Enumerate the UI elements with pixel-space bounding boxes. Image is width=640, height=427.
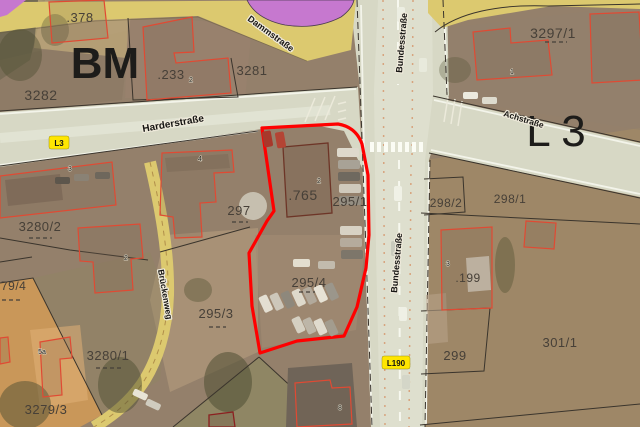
parcel-label-3281: 3281 <box>237 63 268 78</box>
parcel-label-3280-2: 3280/2 <box>19 219 62 234</box>
building-label-1: 1 <box>510 69 514 76</box>
parcel-label-295-3: 295/3 <box>198 306 233 321</box>
parcel-label-298-2: 298/2 <box>430 196 463 210</box>
badge-l190-text: L190 <box>387 359 406 368</box>
building-label-3-left: 3 <box>68 166 72 173</box>
parcel-label-3279-3: 3279/3 <box>25 402 68 417</box>
parcel-199-outline <box>441 227 492 310</box>
parcel-label-765: .765 <box>288 187 317 203</box>
building-label-3-199: 3 <box>446 261 450 268</box>
parcel-label-295-4: 295/4 <box>291 275 326 290</box>
building-label-2: 2 <box>124 255 128 262</box>
parcel-label-79-4: 79/4 <box>1 279 26 293</box>
building-right-edge <box>590 12 640 83</box>
building-left-edge <box>0 337 10 364</box>
parcel-label-298-1: 298/1 <box>494 192 527 206</box>
parcel-label-3297-1: 3297/1 <box>530 25 576 41</box>
building-label-8: 8 <box>338 405 342 412</box>
parcel-label-199: .199 <box>455 271 480 285</box>
building-765 <box>283 143 332 217</box>
parcel-label-299: 299 <box>443 348 466 363</box>
parcel-label-297: 297 <box>227 203 250 218</box>
building-label-4: 4 <box>198 156 202 163</box>
building-bottom-dark <box>209 412 235 427</box>
building-527 <box>524 221 556 249</box>
map-svg: .378 BM 3282 .233 3281 3297/1 L 3 298/2 … <box>0 0 640 427</box>
parcel-label-3280-1: 3280/1 <box>87 348 130 363</box>
building-label-2-765: 2 <box>317 178 321 185</box>
building-label-5a: 5a <box>38 349 46 356</box>
parcel-label-bm: BM <box>71 39 139 88</box>
parcel-label-233: .233 <box>157 67 184 82</box>
building-label-2-233: 2 <box>189 77 193 84</box>
building-8 <box>295 380 352 427</box>
label-l3-big: L 3 <box>526 107 586 156</box>
parcel-label-301-1: 301/1 <box>542 335 577 350</box>
parcel-label-3282: 3282 <box>24 87 57 103</box>
parcel-label-378: .378 <box>66 10 93 25</box>
parcel-label-295-1: 295/1 <box>332 194 367 209</box>
map-canvas[interactable]: .378 BM 3282 .233 3281 3297/1 L 3 298/2 … <box>0 0 640 427</box>
badge-l3-text: L3 <box>54 139 64 148</box>
